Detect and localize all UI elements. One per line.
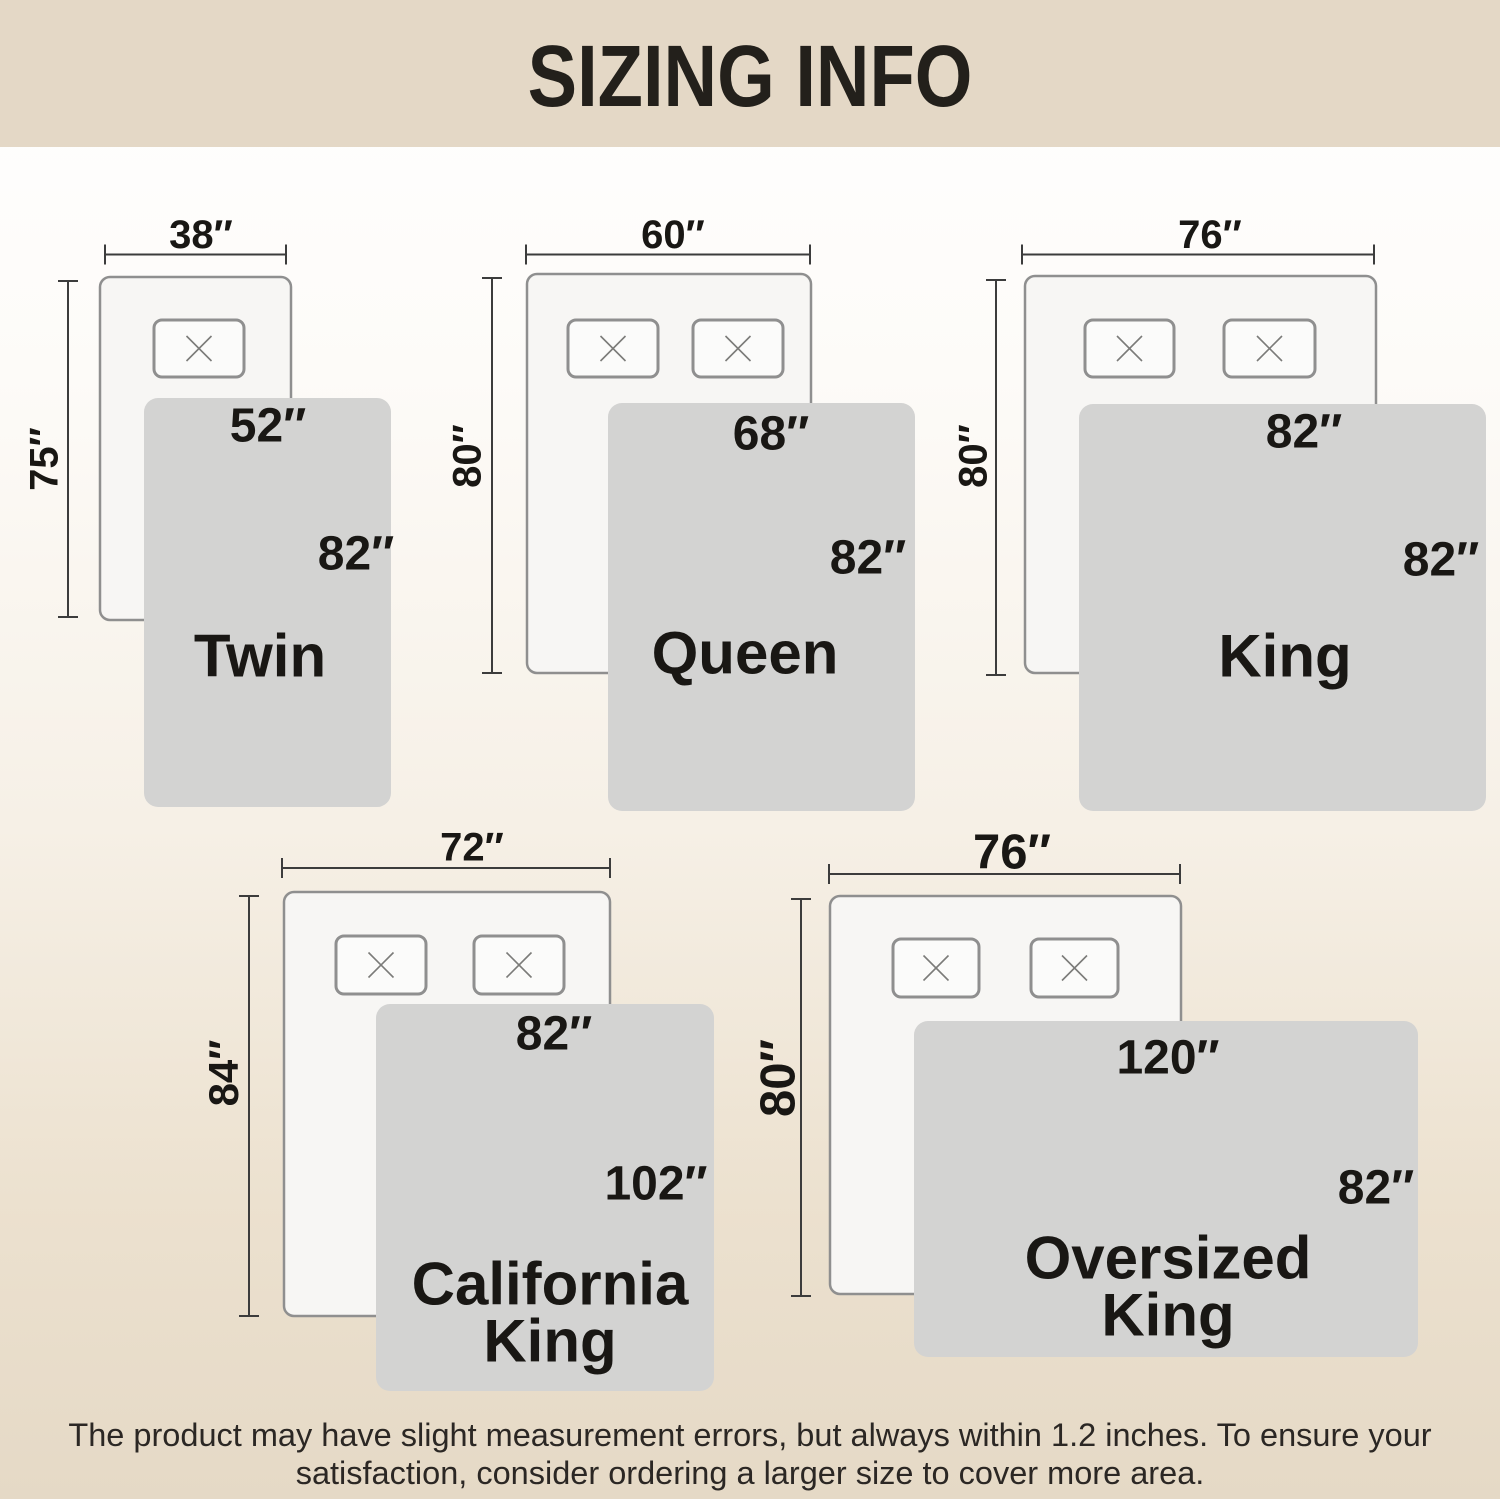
svg-text:84″: 84″ [200, 1040, 247, 1107]
svg-text:76″: 76″ [1178, 213, 1242, 257]
svg-text:72″: 72″ [440, 825, 504, 869]
svg-text:King: King [1101, 1282, 1234, 1349]
svg-text:Queen: Queen [652, 620, 839, 687]
svg-text:102″: 102″ [604, 1157, 707, 1210]
svg-text:King: King [1218, 623, 1351, 690]
svg-text:52″: 52″ [230, 399, 306, 452]
svg-text:80″: 80″ [951, 424, 995, 488]
svg-text:76″: 76″ [973, 826, 1051, 880]
svg-text:82″: 82″ [318, 527, 394, 580]
svg-text:120″: 120″ [1116, 1031, 1219, 1084]
svg-text:Twin: Twin [194, 623, 326, 690]
svg-text:68″: 68″ [733, 407, 809, 460]
svg-text:80″: 80″ [445, 424, 489, 488]
svg-text:82″: 82″ [830, 531, 906, 584]
svg-text:80″: 80″ [752, 1039, 806, 1117]
svg-text:38″: 38″ [169, 213, 233, 257]
svg-text:King: King [483, 1308, 616, 1375]
svg-text:82″: 82″ [1266, 405, 1342, 458]
svg-text:82″: 82″ [1338, 1161, 1414, 1214]
svg-text:82″: 82″ [1403, 533, 1479, 586]
svg-text:82″: 82″ [516, 1007, 592, 1060]
svg-text:75″: 75″ [22, 427, 66, 491]
svg-text:60″: 60″ [641, 213, 705, 257]
